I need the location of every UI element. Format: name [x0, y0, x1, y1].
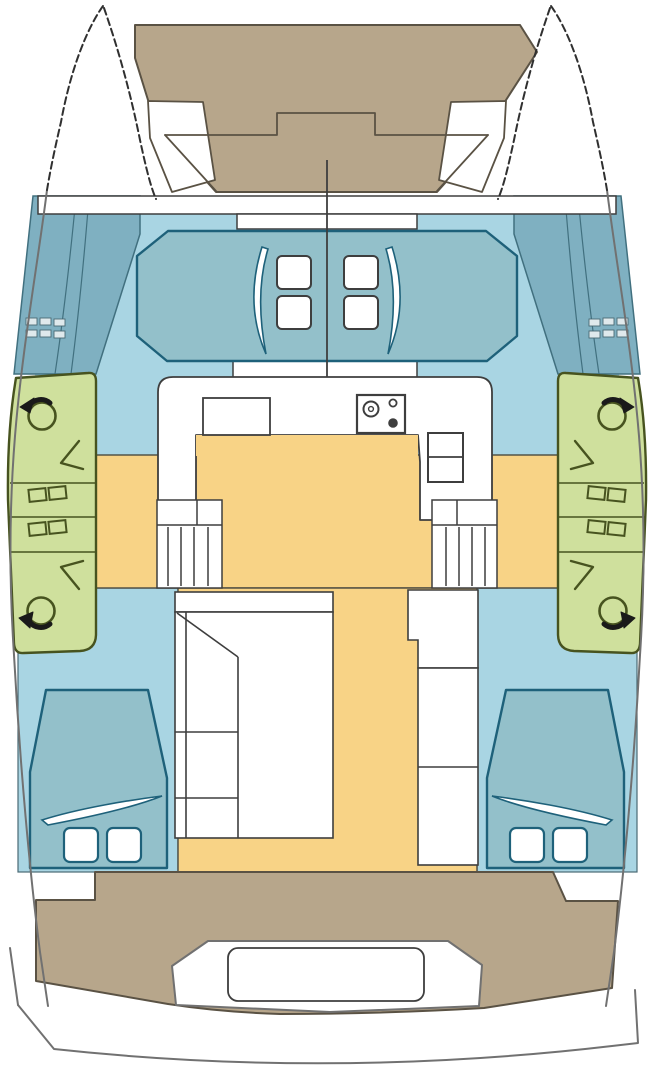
- stove-burner-center: [369, 407, 374, 412]
- port-step-icon: [40, 318, 51, 325]
- aft-bench-seat: [228, 948, 424, 1001]
- catamaran-deck-plan-page: [0, 0, 654, 1080]
- pillow: [510, 828, 544, 862]
- port-winch-panel: [8, 373, 96, 653]
- pillow: [344, 296, 378, 329]
- cabin-bulkhead-strip: [233, 361, 417, 378]
- starboard-step-icon: [603, 330, 614, 337]
- pillow: [277, 296, 311, 329]
- starboard-step-icon: [589, 319, 600, 326]
- saloon-seating-block: [175, 612, 333, 838]
- starboard-step-icon: [589, 331, 600, 338]
- galley-appliance: [203, 398, 270, 435]
- starboard-step-icon: [603, 318, 614, 325]
- aft-bench: [172, 941, 482, 1012]
- port-step-icon: [54, 319, 65, 326]
- pillow: [277, 256, 311, 289]
- port-stairs: [157, 500, 222, 588]
- pillow: [107, 828, 141, 862]
- saloon-table-top: [175, 592, 333, 612]
- stove-burner-small-dark: [389, 419, 397, 427]
- pillow: [553, 828, 587, 862]
- galley-floor-inset: [196, 435, 418, 456]
- port-step-icon: [40, 330, 51, 337]
- port-step-icon: [54, 331, 65, 338]
- pillow: [64, 828, 98, 862]
- stove-burner-small: [389, 399, 396, 406]
- catamaran-deck-plan: [0, 0, 654, 1080]
- pillow: [344, 256, 378, 289]
- starboard-winch-panel: [558, 373, 646, 653]
- saloon-furniture: [175, 590, 478, 865]
- starboard-stairs: [432, 500, 497, 588]
- nav-station-upper: [408, 590, 478, 668]
